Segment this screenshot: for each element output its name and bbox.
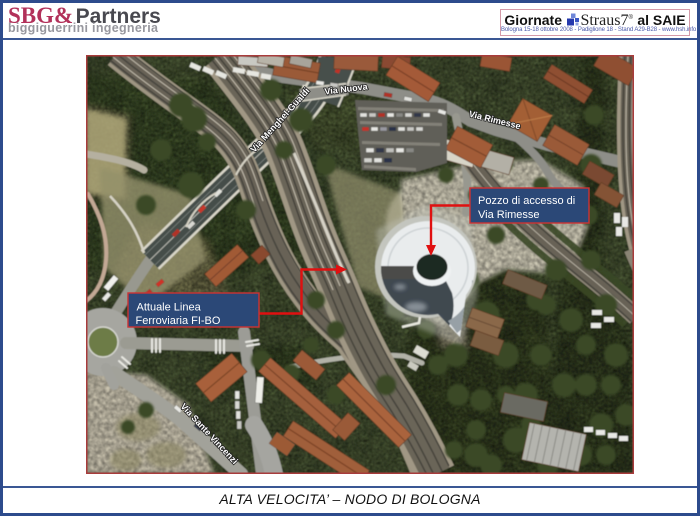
svg-text:Attuale Linea: Attuale Linea [137,302,202,314]
svg-text:Pozzo di accesso di: Pozzo di accesso di [478,195,575,207]
svg-text:Ferroviaria FI-BO: Ferroviaria FI-BO [136,315,221,327]
svg-text:Via Rimesse: Via Rimesse [478,209,540,221]
